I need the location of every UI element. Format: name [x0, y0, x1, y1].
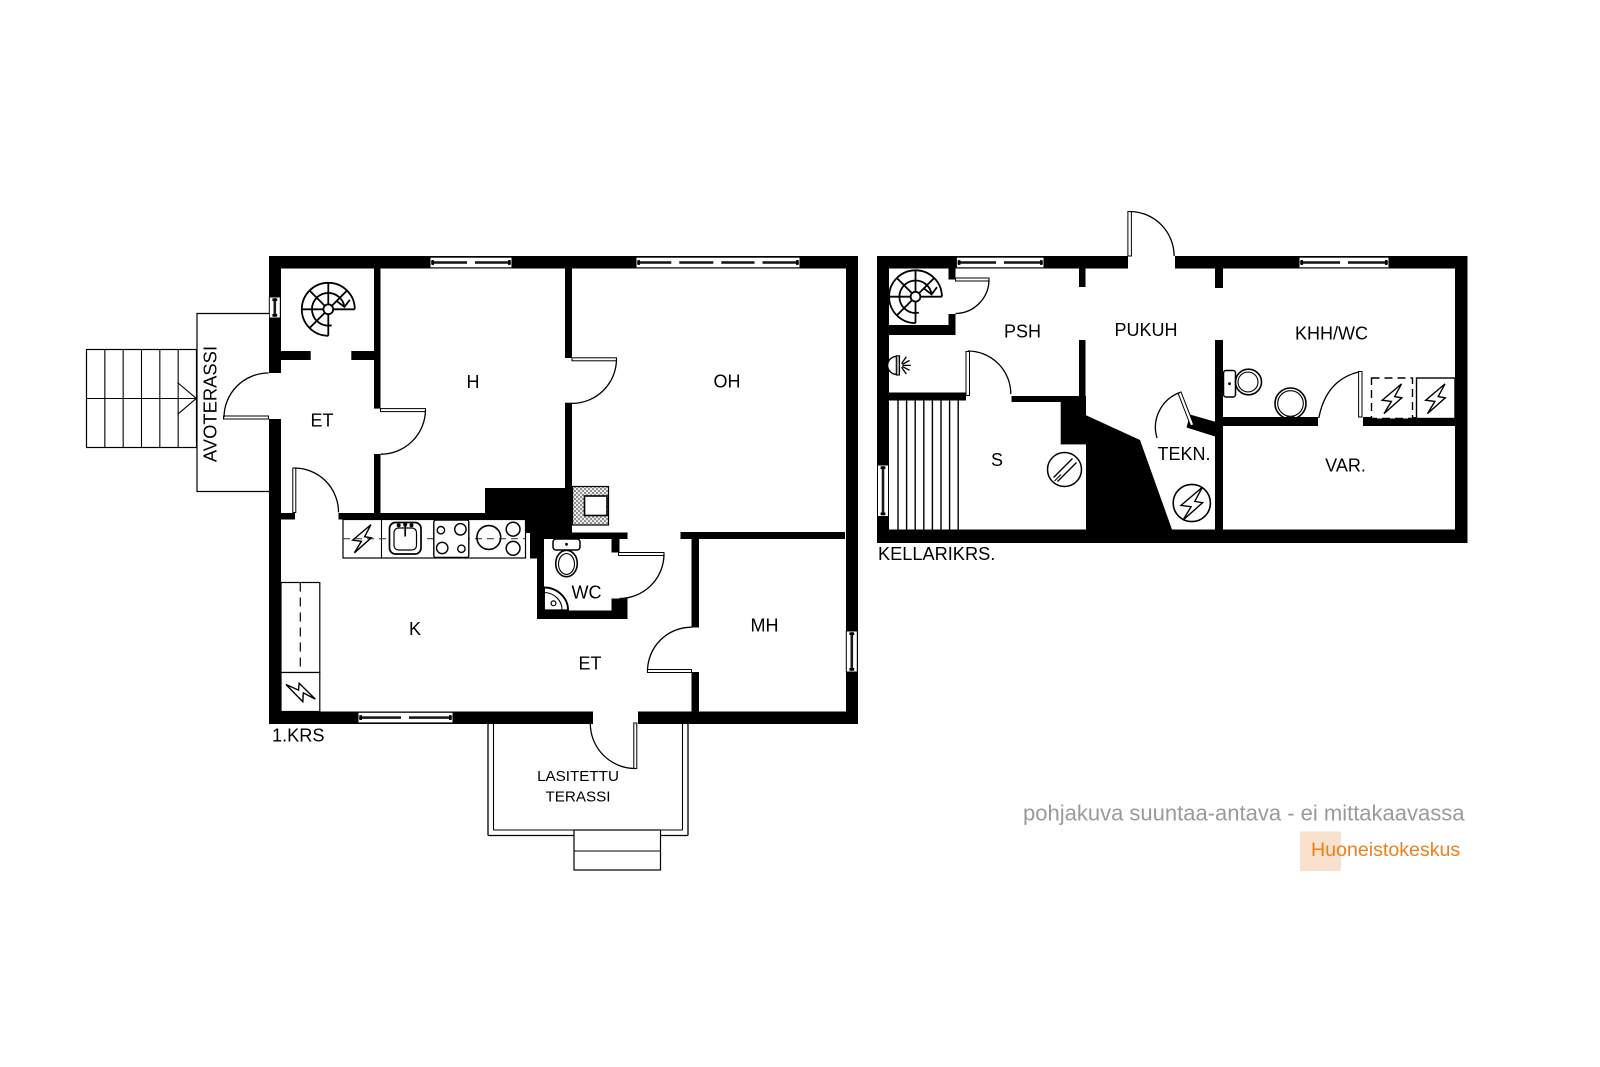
- svg-text:VAR.: VAR.: [1325, 456, 1366, 476]
- svg-text:TEKN.: TEKN.: [1157, 444, 1210, 464]
- svg-text:PUKUH: PUKUH: [1114, 320, 1177, 340]
- svg-text:PSH: PSH: [1004, 322, 1041, 342]
- svg-text:OH: OH: [714, 372, 741, 392]
- svg-text:1.KRS: 1.KRS: [272, 725, 325, 745]
- svg-text:ET: ET: [578, 654, 601, 674]
- svg-text:MH: MH: [751, 616, 779, 636]
- svg-text:KHH/WC: KHH/WC: [1295, 324, 1368, 344]
- svg-text:ET: ET: [310, 411, 333, 431]
- svg-text:KELLARIKRS.: KELLARIKRS.: [878, 544, 995, 564]
- svg-text:AVOTERASSI: AVOTERASSI: [200, 346, 221, 462]
- svg-text:H: H: [467, 372, 480, 392]
- svg-text:K: K: [409, 619, 421, 639]
- svg-text:WC: WC: [572, 583, 602, 603]
- svg-text:S: S: [991, 450, 1003, 470]
- svg-text:TERASSI: TERASSI: [546, 789, 611, 806]
- svg-text:LASITETTU: LASITETTU: [537, 768, 619, 785]
- svg-text:pohjakuva suuntaa-antava - ei: pohjakuva suuntaa-antava - ei mittakaava…: [1023, 801, 1465, 826]
- svg-text:Huoneistokeskus: Huoneistokeskus: [1311, 839, 1460, 861]
